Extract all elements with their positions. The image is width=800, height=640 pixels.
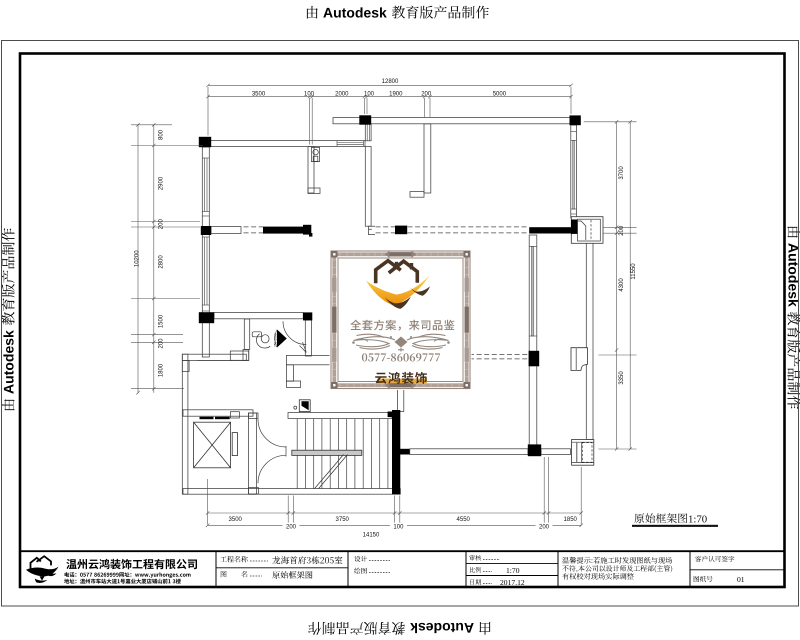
svg-text:1500: 1500 <box>158 314 164 328</box>
svg-text:2800: 2800 <box>158 255 164 269</box>
svg-text:14150: 14150 <box>363 533 380 539</box>
svg-text:100: 100 <box>364 91 375 97</box>
svg-text:3500: 3500 <box>229 517 243 523</box>
svg-text:750-2000: 750-2000 <box>274 333 278 347</box>
svg-text:01: 01 <box>737 575 745 584</box>
svg-text:1800: 1800 <box>158 363 164 377</box>
svg-text:200: 200 <box>158 338 164 349</box>
svg-text:800: 800 <box>158 129 164 140</box>
svg-text:200: 200 <box>158 219 164 230</box>
svg-text:1900: 1900 <box>389 91 403 97</box>
svg-text:10200: 10200 <box>135 250 141 267</box>
svg-text:200: 200 <box>286 525 297 531</box>
svg-text:4300: 4300 <box>619 278 625 292</box>
svg-text:3350: 3350 <box>619 371 625 385</box>
svg-text:11550: 11550 <box>631 263 637 280</box>
svg-text:3700: 3700 <box>619 166 625 180</box>
svg-text:3500: 3500 <box>252 91 266 97</box>
svg-text:3750: 3750 <box>336 517 350 523</box>
svg-text:2000: 2000 <box>335 91 349 97</box>
svg-text:200: 200 <box>619 225 625 236</box>
svg-text:4550: 4550 <box>457 517 471 523</box>
svg-text:2900: 2900 <box>158 176 164 190</box>
svg-text:5000: 5000 <box>493 91 507 97</box>
svg-text:100: 100 <box>304 91 315 97</box>
svg-text:1:70: 1:70 <box>506 566 520 575</box>
svg-text:1:70: 1:70 <box>688 513 707 525</box>
svg-text:200: 200 <box>539 525 550 531</box>
svg-text:100: 100 <box>393 525 404 531</box>
svg-text:2017.12: 2017.12 <box>500 578 525 587</box>
svg-text:200: 200 <box>421 91 432 97</box>
svg-text:12800: 12800 <box>382 79 399 85</box>
svg-text:1850: 1850 <box>564 517 578 523</box>
